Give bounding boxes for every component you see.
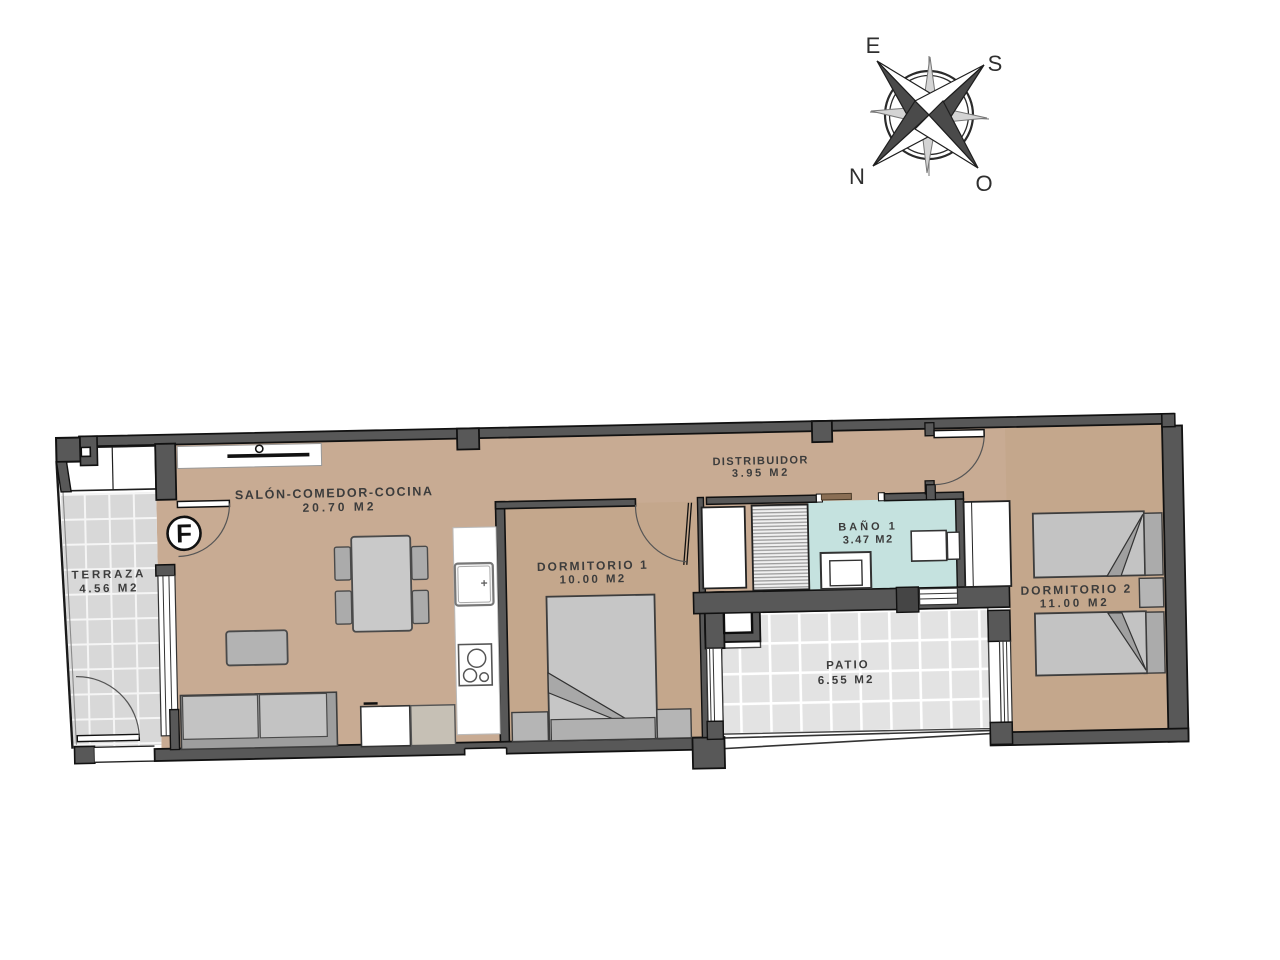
svg-text:3.47 M2: 3.47 M2 [843, 533, 894, 546]
svg-text:E: E [866, 33, 881, 58]
svg-text:DORMITORIO 1: DORMITORIO 1 [537, 558, 649, 574]
svg-text:S: S [988, 51, 1003, 76]
svg-text:PATIO: PATIO [826, 659, 870, 672]
svg-text:6.55 M2: 6.55 M2 [818, 674, 875, 687]
svg-text:TERRAZA: TERRAZA [71, 568, 146, 582]
svg-text:DORMITORIO 2: DORMITORIO 2 [1020, 582, 1132, 598]
svg-text:N: N [849, 164, 865, 189]
svg-text:4.56 M2: 4.56 M2 [79, 582, 139, 595]
svg-text:DISTRIBUIDOR: DISTRIBUIDOR [712, 454, 808, 468]
svg-text:F: F [176, 518, 193, 548]
svg-text:O: O [975, 171, 992, 196]
svg-text:10.00 M2: 10.00 M2 [559, 573, 626, 586]
svg-text:BAÑO 1: BAÑO 1 [838, 519, 898, 533]
svg-text:20.70 M2: 20.70 M2 [302, 499, 376, 515]
svg-text:3.95 M2: 3.95 M2 [732, 467, 790, 480]
svg-text:11.00 M2: 11.00 M2 [1040, 597, 1110, 610]
